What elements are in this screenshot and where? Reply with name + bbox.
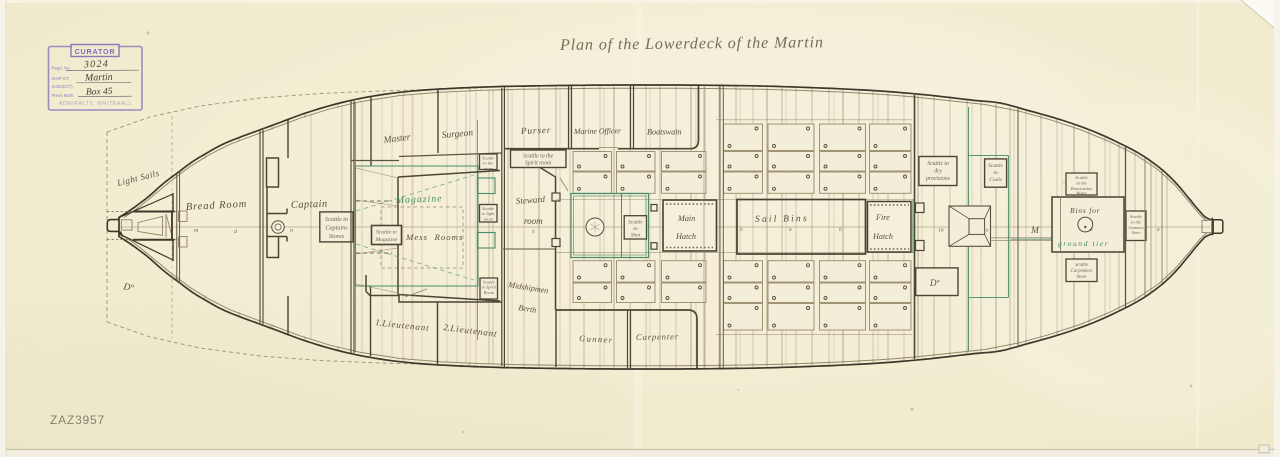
svg-text:to the: to the <box>1131 219 1141 224</box>
svg-text:Scuttle to: Scuttle to <box>376 230 397 236</box>
svg-text:Scuttle: Scuttle <box>1130 214 1142 219</box>
svg-text:Room: Room <box>483 290 494 295</box>
svg-text:Martin: Martin <box>84 72 113 84</box>
svg-text:M: M <box>1030 226 1040 236</box>
svg-text:Water: Water <box>1076 191 1087 196</box>
svg-text:Scuttle: Scuttle <box>1075 263 1089 268</box>
svg-text:Mess Rooms: Mess Rooms <box>405 232 463 242</box>
svg-text:Store: Store <box>1077 275 1088 280</box>
svg-text:ground tier: ground tier <box>1058 239 1109 248</box>
svg-text:b: b <box>839 227 842 233</box>
svg-text:Gunner: Gunner <box>579 333 614 345</box>
svg-text:n: n <box>290 228 293 234</box>
svg-text:Carpenter: Carpenter <box>636 331 679 342</box>
svg-text:Scuttle: Scuttle <box>988 163 1003 169</box>
svg-text:Dº: Dº <box>929 278 939 288</box>
svg-text:room: room <box>484 166 493 171</box>
svg-text:Fire: Fire <box>875 213 890 222</box>
svg-text:Captains: Captains <box>325 225 348 232</box>
svg-text:Spirit room: Spirit room <box>525 161 551 167</box>
svg-text:room: room <box>524 216 543 226</box>
svg-text:Scuttle: Scuttle <box>628 220 643 226</box>
svg-text:3024: 3024 <box>83 59 110 71</box>
svg-text:Marine Officer: Marine Officer <box>573 126 622 136</box>
svg-text:Hatch: Hatch <box>675 232 696 241</box>
svg-text:Captain: Captain <box>291 199 328 211</box>
svg-text:SUBJECT): SUBJECT) <box>52 84 74 89</box>
svg-text:Boatswain: Boatswain <box>647 128 682 137</box>
svg-text:Magazine: Magazine <box>395 193 443 206</box>
svg-text:provisions: provisions <box>925 176 951 182</box>
svg-text:Press Mark: Press Mark <box>52 93 75 98</box>
svg-text:Steward: Steward <box>515 194 545 206</box>
svg-text:Gunners: Gunners <box>1128 225 1143 230</box>
svg-text:Scuttle: Scuttle <box>1075 175 1088 180</box>
svg-text:CURATOR: CURATOR <box>75 47 116 56</box>
svg-text:b: b <box>740 227 743 233</box>
svg-text:Main: Main <box>677 214 695 223</box>
svg-text:Magazine: Magazine <box>374 237 398 243</box>
svg-text:Sail Bins: Sail Bins <box>755 214 809 225</box>
svg-text:Hatch: Hatch <box>872 232 893 241</box>
svg-text:Bins for: Bins for <box>1070 206 1100 215</box>
svg-text:dry: dry <box>934 169 942 175</box>
svg-text:Scuttle to: Scuttle to <box>927 161 949 167</box>
svg-text:Shot: Shot <box>631 233 641 239</box>
svg-text:room: room <box>484 216 493 221</box>
svg-text:m: m <box>194 228 199 234</box>
svg-text:ZAZ3957: ZAZ3957 <box>50 413 105 427</box>
svg-text:h: h <box>532 229 535 235</box>
svg-text:to: to <box>633 226 637 232</box>
svg-text:Coals: Coals <box>989 177 1002 183</box>
svg-text:to the: to the <box>1076 180 1086 185</box>
svg-text:SHIP OT:: SHIP OT: <box>52 76 70 81</box>
svg-text:Scuttle to: Scuttle to <box>325 216 348 223</box>
svg-text:16: 16 <box>938 228 944 234</box>
svg-text:Plan of the Lowerdeck of the M: Plan of the Lowerdeck of the Martin <box>559 34 824 54</box>
svg-text:x: x <box>1156 227 1160 233</box>
svg-text:b: b <box>789 227 792 233</box>
svg-text:to: to <box>993 170 997 176</box>
svg-text:Scuttle to the: Scuttle to the <box>523 154 554 160</box>
svg-text:Regd. No.: Regd. No. <box>52 66 71 71</box>
svg-text:Store: Store <box>1131 230 1140 235</box>
svg-text:Purser: Purser <box>520 126 552 137</box>
svg-text:Carpenters: Carpenters <box>1071 269 1093 274</box>
svg-text:Stores: Stores <box>329 233 345 240</box>
svg-text:ADMIRALTY, WHITEHALL: ADMIRALTY, WHITEHALL <box>59 101 132 107</box>
